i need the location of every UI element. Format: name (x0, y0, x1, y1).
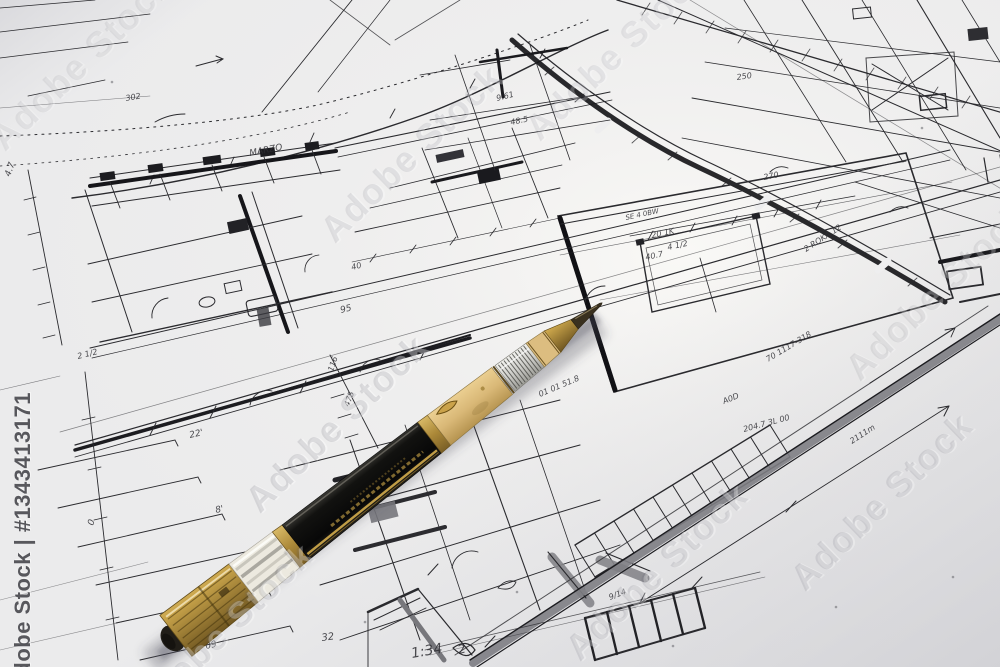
dust-speck (516, 591, 519, 594)
dust-speck (952, 576, 955, 579)
dust-speck (672, 645, 675, 648)
photo-stage: 302MARZO2509.6148.5SE 4 0BW20 1K40.74 1/… (0, 0, 1000, 667)
watermark-id: Adobe Stock | #1343413171 Adobe Stock | … (10, 391, 36, 667)
dust-speck (364, 621, 367, 624)
dust-speck (835, 606, 838, 609)
blueprint-photo: 302MARZO2509.6148.5SE 4 0BW20 1K40.74 1/… (0, 0, 1000, 667)
watermark-id-text: Adobe Stock | #1343413171 (10, 392, 35, 667)
dust-speck (111, 81, 114, 84)
annotation-text: 32 (321, 631, 335, 644)
dust-speck (921, 127, 924, 130)
